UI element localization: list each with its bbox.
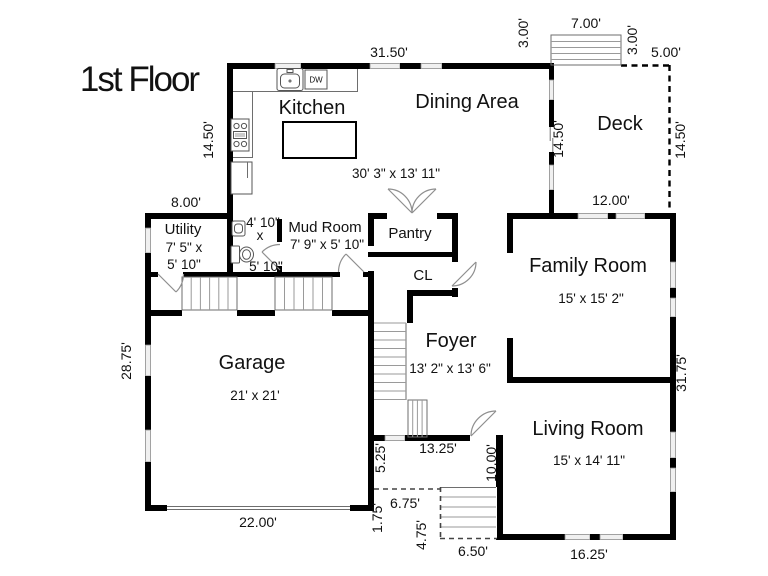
wall-segment bbox=[368, 271, 374, 511]
label-living-size: 15' x 14' 11" bbox=[553, 453, 625, 468]
dim-entry-wall: 13.25' bbox=[419, 440, 457, 456]
wall-segment bbox=[332, 310, 374, 316]
dim-left-wall: 28.75' bbox=[118, 342, 134, 380]
wall-segment bbox=[507, 213, 578, 219]
dim-entry-side: 10.00' bbox=[483, 444, 499, 482]
wall-segment bbox=[301, 63, 370, 69]
label-garage-size: 21' x 21' bbox=[230, 388, 279, 403]
wall-segment bbox=[497, 534, 565, 540]
label-mudroom: Mud Room bbox=[288, 219, 361, 236]
wall-segment bbox=[368, 213, 387, 219]
wall-segment bbox=[670, 458, 676, 468]
mudroom-door bbox=[339, 254, 347, 272]
label-utility: Utility bbox=[165, 221, 202, 238]
stairs-garage-left bbox=[182, 277, 237, 310]
window bbox=[146, 228, 151, 253]
window bbox=[370, 64, 400, 69]
stairs-lower-flight bbox=[408, 400, 427, 437]
wall-segment bbox=[145, 462, 151, 511]
wall-segment bbox=[608, 213, 616, 219]
window bbox=[275, 64, 301, 69]
wall-segment bbox=[145, 213, 151, 228]
wall-segment bbox=[670, 213, 676, 262]
stairs-foyer bbox=[374, 323, 406, 400]
label-living: Living Room bbox=[532, 418, 643, 440]
wall-segment bbox=[145, 213, 233, 219]
dim-deck-bottom: 12.00' bbox=[592, 192, 630, 208]
label-utility-size1: 7' 5" x bbox=[166, 240, 203, 255]
label-family-size: 15' x 15' 2" bbox=[558, 291, 624, 306]
dim-front-steps-width: 6.50' bbox=[458, 543, 488, 559]
wall-segment bbox=[368, 435, 385, 441]
dim-porch-step: 1.75' bbox=[369, 503, 385, 533]
wall-segment bbox=[645, 213, 676, 219]
window bbox=[671, 298, 676, 317]
label-closet: CL bbox=[413, 267, 432, 284]
dim-porch-depth: 5.25' bbox=[372, 443, 388, 473]
wall-segment bbox=[227, 63, 275, 69]
wall-segment bbox=[670, 492, 676, 540]
wall-segment bbox=[549, 63, 554, 80]
front-steps-bg bbox=[440, 487, 497, 539]
window bbox=[385, 436, 405, 441]
floor-plan-page: DW 1st Floor Kitc bbox=[0, 0, 768, 576]
dim-kitchen-height: 14.50' bbox=[200, 121, 216, 159]
label-family: Family Room bbox=[529, 255, 647, 277]
label-foyer: Foyer bbox=[425, 330, 476, 352]
wall-segment bbox=[145, 505, 167, 511]
window bbox=[146, 345, 151, 376]
dim-top-wall: 31.50' bbox=[370, 44, 408, 60]
wall-segment bbox=[363, 272, 368, 277]
dim-right-wall: 31.75' bbox=[673, 354, 689, 392]
label-bath-size3: 5' 10" bbox=[249, 259, 283, 274]
label-pantry: Pantry bbox=[388, 225, 432, 242]
dim-deck-top-right: 5.00' bbox=[651, 44, 681, 60]
wall-segment bbox=[145, 376, 151, 430]
dishwasher-label: DW bbox=[309, 76, 323, 85]
sink-icon bbox=[277, 69, 303, 91]
wall-segment bbox=[407, 290, 458, 296]
wall-segment bbox=[507, 338, 513, 383]
dimension-labels: 31.50' 7.00' 3.00' 3.00' 5.00' 14.50' 14… bbox=[118, 15, 689, 562]
floor-plan-drawing: DW 1st Floor Kitc bbox=[0, 0, 768, 576]
utility-door-leaf bbox=[158, 274, 176, 292]
stove-icon bbox=[231, 119, 249, 151]
window bbox=[146, 430, 151, 462]
mudroom-door-leaf bbox=[346, 254, 364, 272]
dim-front-steps-height: 4.75' bbox=[413, 520, 429, 550]
dishwasher-icon: DW bbox=[305, 70, 327, 89]
window bbox=[550, 80, 554, 100]
wall-segment bbox=[623, 534, 676, 540]
window bbox=[671, 262, 676, 288]
dim-deck-steps-width: 7.00' bbox=[571, 15, 601, 31]
wall-segment bbox=[590, 534, 600, 540]
dim-living-bottom: 16.25' bbox=[570, 546, 608, 562]
wall-segment bbox=[507, 213, 513, 253]
wall-segment bbox=[368, 252, 458, 257]
label-kitchen: Kitchen bbox=[279, 97, 346, 119]
wall-segment bbox=[670, 288, 676, 298]
wall-segment bbox=[145, 272, 158, 277]
window bbox=[616, 214, 645, 219]
window bbox=[565, 535, 590, 540]
dim-utility-width: 8.00' bbox=[171, 194, 201, 210]
stairs-garage-right bbox=[275, 277, 332, 310]
wall-segment bbox=[145, 310, 182, 316]
dim-garage-bottom: 22.00' bbox=[239, 514, 277, 530]
wall-segment bbox=[237, 310, 275, 316]
bathroom-door bbox=[262, 245, 280, 253]
window bbox=[671, 432, 676, 458]
dim-deck-steps-depth-left: 3.00' bbox=[515, 18, 531, 48]
dim-deck-left-height: 14.50' bbox=[550, 120, 566, 158]
kitchen-island bbox=[283, 122, 356, 158]
kitchen-fixtures: DW bbox=[231, 69, 358, 195]
label-foyer-size: 13' 2" x 13' 6" bbox=[409, 361, 491, 376]
fridge-icon bbox=[231, 162, 252, 194]
dim-deck-right-height: 14.50' bbox=[672, 121, 688, 159]
label-dining: Dining Area bbox=[415, 91, 519, 113]
label-garage: Garage bbox=[219, 352, 286, 374]
window bbox=[550, 165, 554, 190]
label-kitchen-dining-size: 30' 3" x 13' 11" bbox=[352, 166, 440, 181]
wall-segment bbox=[507, 377, 676, 383]
bath-sink-icon bbox=[232, 221, 245, 236]
label-bath-size2: x bbox=[257, 228, 264, 243]
window bbox=[671, 468, 676, 492]
window bbox=[421, 64, 442, 69]
wall-segment bbox=[442, 63, 554, 69]
window bbox=[578, 214, 608, 219]
wall-segment bbox=[145, 253, 151, 345]
page-title: 1st Floor bbox=[80, 60, 200, 99]
dim-deck-steps-depth-right: 3.00' bbox=[624, 25, 640, 55]
wall-segment bbox=[407, 290, 413, 323]
label-deck: Deck bbox=[597, 113, 644, 135]
deck-steps bbox=[551, 35, 621, 65]
label-utility-size2: 5' 10" bbox=[167, 257, 201, 272]
wall-segment bbox=[549, 190, 554, 213]
dim-porch-width: 6.75' bbox=[390, 495, 420, 511]
window bbox=[600, 535, 623, 540]
label-mudroom-size: 7' 9" x 5' 10" bbox=[290, 237, 364, 252]
deck-steps-outline bbox=[551, 35, 621, 65]
wall-segment bbox=[400, 63, 421, 69]
